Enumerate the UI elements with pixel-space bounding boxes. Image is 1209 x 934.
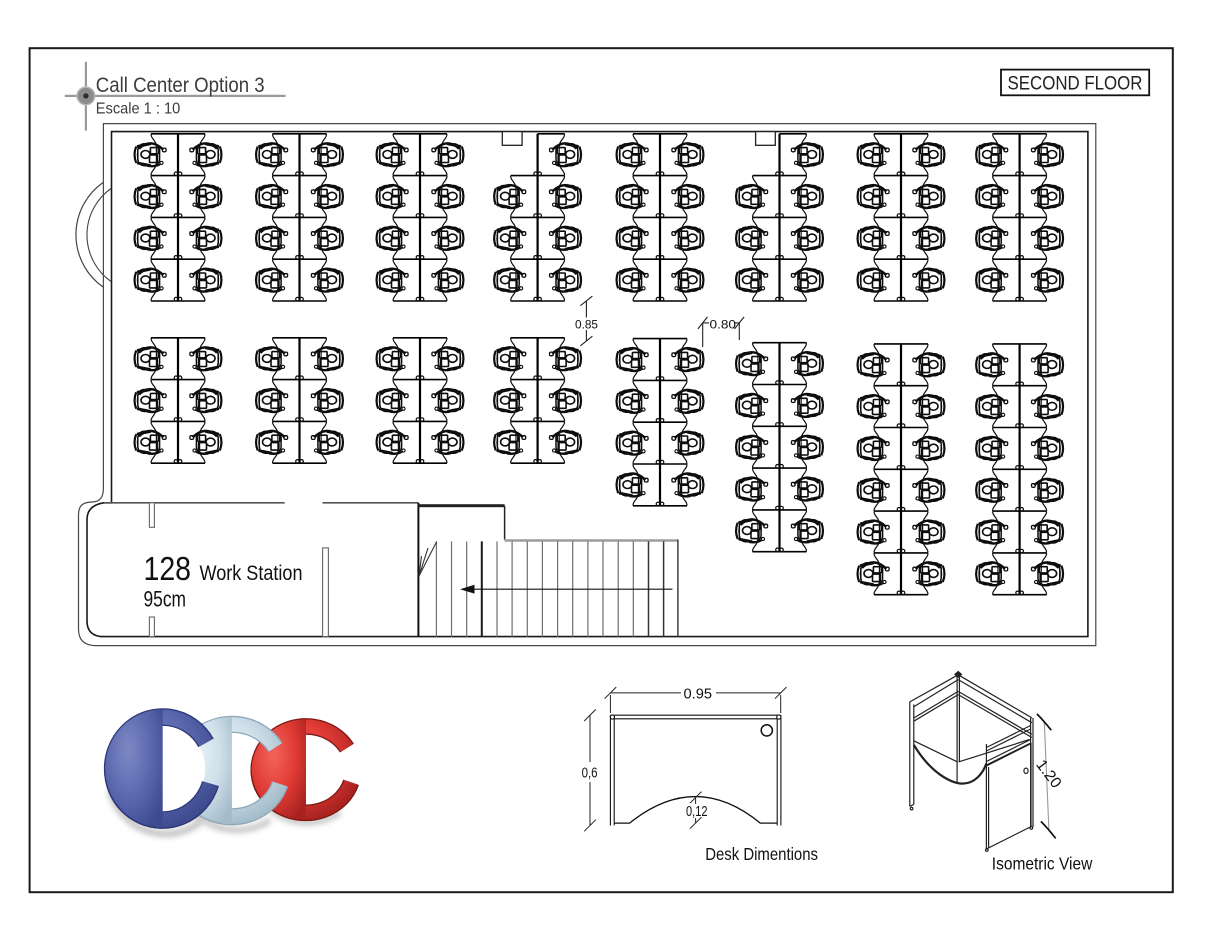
svg-text:Isometric View: Isometric View <box>992 853 1093 873</box>
svg-text:0,6: 0,6 <box>582 766 598 782</box>
svg-text:SECOND FLOOR: SECOND FLOOR <box>1008 74 1143 95</box>
svg-text:Call Center Option 3: Call Center Option 3 <box>96 74 265 97</box>
svg-text:95cm: 95cm <box>144 587 187 612</box>
svg-text:Work Station: Work Station <box>200 562 303 585</box>
svg-text:0,12: 0,12 <box>686 804 708 820</box>
svg-text:Escale 1 : 10: Escale 1 : 10 <box>96 100 180 117</box>
svg-text:0.95: 0.95 <box>684 686 713 702</box>
svg-text:0.85: 0.85 <box>575 318 598 332</box>
svg-text:Desk Dimentions: Desk Dimentions <box>705 844 818 864</box>
svg-text:128: 128 <box>144 550 192 587</box>
svg-text:0.80: 0.80 <box>710 318 737 332</box>
